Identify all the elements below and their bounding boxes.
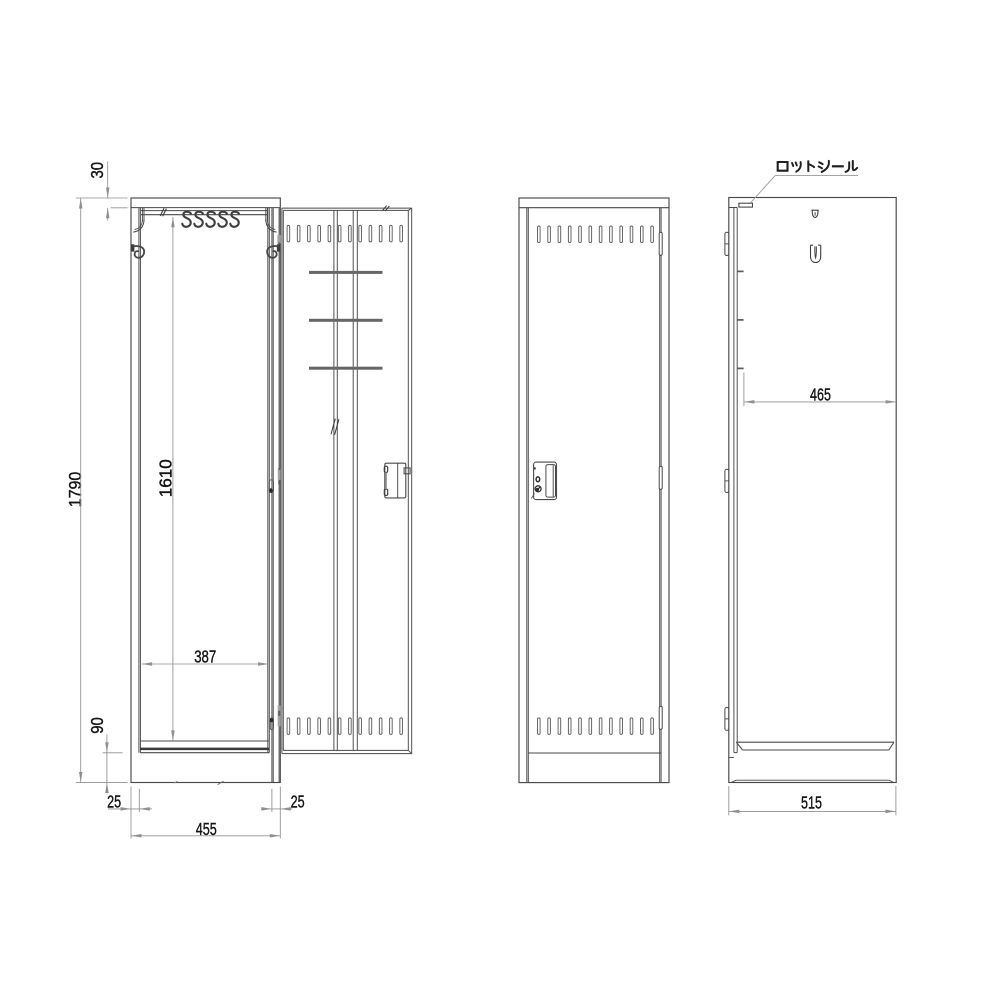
svg-text:515: 515 [801,793,822,813]
svg-text:90: 90 [87,717,107,734]
svg-text:30: 30 [87,162,107,179]
svg-text:25: 25 [291,792,305,812]
svg-text:1790: 1790 [65,472,85,508]
